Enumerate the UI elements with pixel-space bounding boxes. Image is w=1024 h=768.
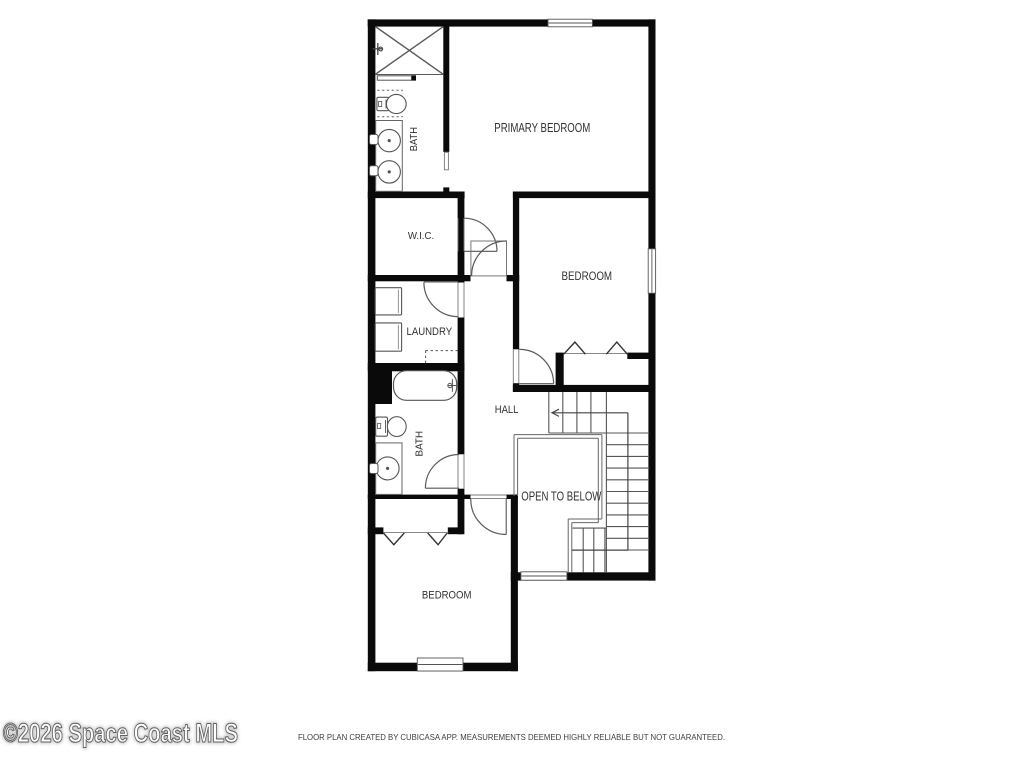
svg-text:W.I.C.: W.I.C. [408,231,434,242]
svg-text:BATH: BATH [414,431,426,457]
svg-text:BEDROOM: BEDROOM [562,269,613,283]
svg-text:FLOOR PLAN CREATED BY CUBICASA: FLOOR PLAN CREATED BY CUBICASA APP. MEAS… [298,733,725,742]
svg-text:©2026 Space Coast MLS: ©2026 Space Coast MLS [3,718,238,748]
svg-text:BEDROOM: BEDROOM [422,590,472,602]
svg-text:LAUNDRY: LAUNDRY [407,326,453,338]
svg-text:PRIMARY BEDROOM: PRIMARY BEDROOM [494,120,590,135]
svg-text:BATH: BATH [409,127,420,151]
svg-text:HALL: HALL [495,404,519,416]
svg-text:OPEN TO BELOW: OPEN TO BELOW [521,490,601,504]
